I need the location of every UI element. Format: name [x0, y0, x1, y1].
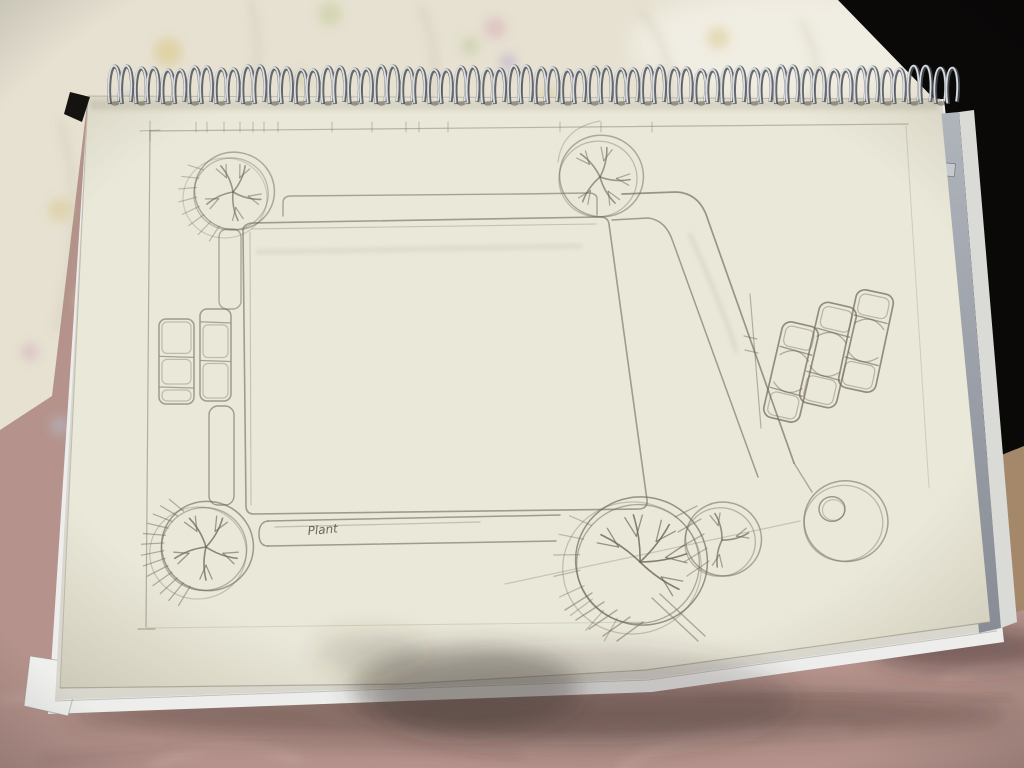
photo-vignette [0, 0, 1024, 768]
photo-of-sketchbook-site-plan: 19Plant [0, 0, 1024, 768]
scene-canvas: 19Plant [0, 0, 1024, 768]
